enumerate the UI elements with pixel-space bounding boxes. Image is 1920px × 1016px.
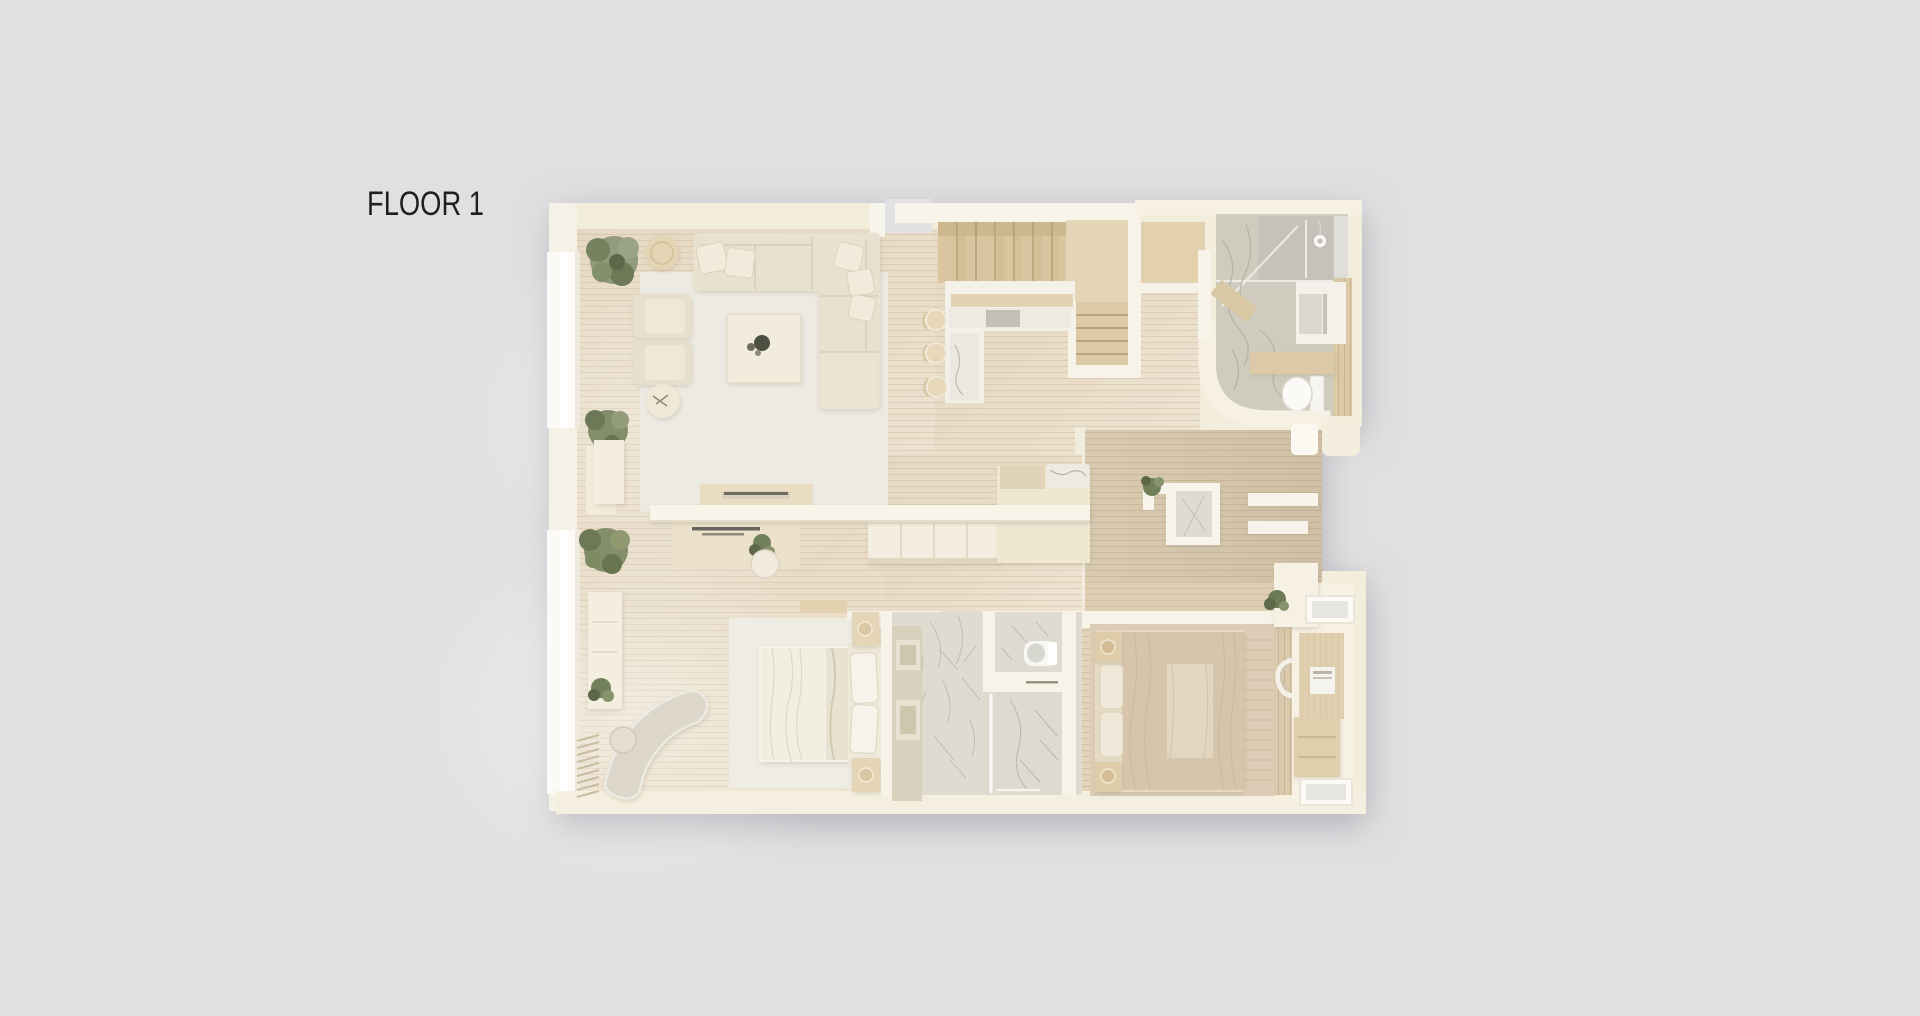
svg-text:FLOOR 1: FLOOR 1 bbox=[367, 185, 484, 223]
